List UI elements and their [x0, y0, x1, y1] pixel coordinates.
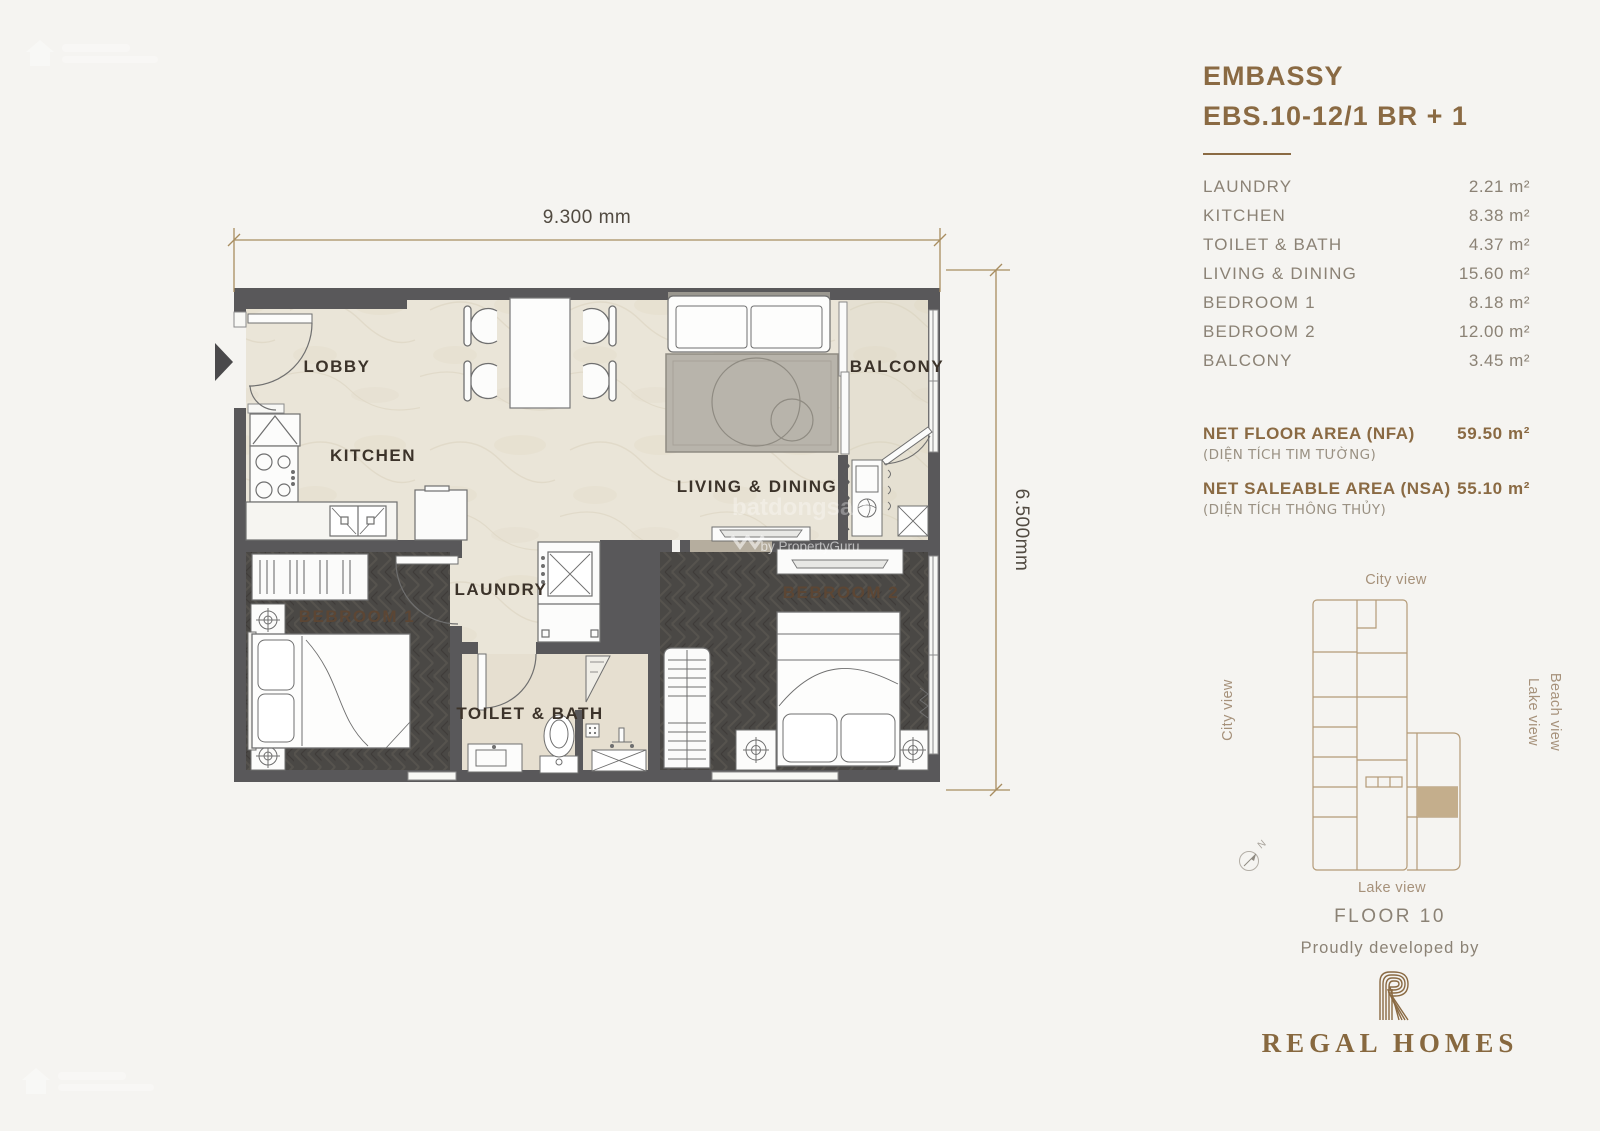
- keyplan-label-right-inner: Lake view: [1525, 678, 1541, 746]
- room-schedule-row: LAUNDRY 2.21 m²: [1203, 172, 1530, 201]
- label-balcony: BALCONY: [850, 357, 945, 376]
- label-toilet: TOILET & BATH: [456, 704, 603, 723]
- room-area: 4.37 m²: [1469, 235, 1530, 255]
- nsa-value: 55.10 m²: [1457, 479, 1530, 499]
- room-schedule-row: BEDROOM 2 12.00 m²: [1203, 317, 1530, 346]
- label-bedroom1: BEBROOM 1: [299, 607, 415, 626]
- dimension-top-label: 9.300 mm: [543, 207, 631, 228]
- compass-icon: [1240, 852, 1259, 871]
- watermark-byline: by PropertyGuru: [760, 539, 859, 554]
- developer-logo-wrap: [1180, 966, 1600, 1027]
- label-bedroom2: BEBROOM 2: [783, 583, 899, 602]
- nsa-sublabel: (DIỆN TÍCH THÔNG THỦY): [1203, 502, 1530, 518]
- floor-number: FLOOR 10: [1180, 906, 1600, 928]
- compass-north-label: N: [1256, 838, 1269, 851]
- developer-logo-icon: [1366, 966, 1414, 1022]
- nfa-value: 59.50 m²: [1457, 424, 1530, 444]
- room-schedule-row: TOILET & BATH 4.37 m²: [1203, 230, 1530, 259]
- unit-title: EMBASSY EBS.10-12/1 BR + 1: [1203, 56, 1563, 136]
- floorplan-drawing: LOBBY KITCHEN LIVING & DINING BALCONY LA…: [0, 0, 1160, 1131]
- room-area: 8.38 m²: [1469, 206, 1530, 226]
- room-name: TOILET & BATH: [1203, 235, 1342, 255]
- room-schedule-row: KITCHEN 8.38 m²: [1203, 201, 1530, 230]
- label-laundry: LAUNDRY: [455, 580, 548, 599]
- room-area: 15.60 m²: [1459, 264, 1530, 284]
- room-area: 3.45 m²: [1469, 351, 1530, 371]
- nfa-sublabel: (DIỆN TÍCH TIM TƯỜNG): [1203, 447, 1530, 463]
- keyplan-label-top: City view: [1365, 572, 1427, 588]
- room-schedule-row: BALCONY 3.45 m²: [1203, 346, 1530, 375]
- room-area: 2.21 m²: [1469, 177, 1530, 197]
- keyplan-label-bottom: Lake view: [1358, 880, 1426, 896]
- keyplan-label-right-outer: Beach view: [1547, 673, 1563, 751]
- balcony-sliding-door: [839, 302, 849, 454]
- developer-name: REGAL HOMES: [1180, 1028, 1600, 1059]
- nfa-block: NET FLOOR AREA (NFA) 59.50 m² (DIỆN TÍCH…: [1203, 424, 1530, 463]
- corner-watermark-bottom-icon: [18, 1060, 168, 1100]
- watermark-brand: batdongsan: [732, 494, 868, 521]
- keyplan-labels: City view City view Lake view Beach view…: [1220, 572, 1563, 896]
- room-name: KITCHEN: [1203, 206, 1286, 226]
- label-lobby: LOBBY: [304, 357, 371, 376]
- project-name: EMBASSY: [1203, 56, 1563, 96]
- unit-code: EBS.10-12/1 BR + 1: [1203, 96, 1563, 136]
- room-name: LIVING & DINING: [1203, 264, 1357, 284]
- room-name: BALCONY: [1203, 351, 1293, 371]
- label-kitchen: KITCHEN: [330, 446, 416, 465]
- room-schedule-row: LIVING & DINING 15.60 m²: [1203, 259, 1530, 288]
- room-schedule-row: BEDROOM 1 8.18 m²: [1203, 288, 1530, 317]
- nsa-label: NET SALEABLE AREA (NSA): [1203, 479, 1451, 499]
- dimension-right-label: 6.500mm: [1011, 489, 1032, 572]
- room-name: LAUNDRY: [1203, 177, 1292, 197]
- room-name: BEDROOM 1: [1203, 293, 1316, 313]
- room-schedule: LAUNDRY 2.21 m² KITCHEN 8.38 m² TOILET &…: [1203, 172, 1530, 375]
- room-area: 8.18 m²: [1469, 293, 1530, 313]
- room-area: 12.00 m²: [1459, 322, 1530, 342]
- wall-jamb: [672, 540, 680, 552]
- keyplan-label-left: City view: [1220, 679, 1236, 741]
- developer-tagline: Proudly developed by: [1180, 939, 1600, 958]
- entrance-arrow-icon: [215, 343, 233, 381]
- floorplan-page: LOBBY KITCHEN LIVING & DINING BALCONY LA…: [0, 0, 1600, 1131]
- nsa-block: NET SALEABLE AREA (NSA) 55.10 m² (DIỆN T…: [1203, 479, 1530, 518]
- keyplan-diagram: N City view City view Lake view Beach vi…: [1180, 540, 1600, 905]
- room-name: BEDROOM 2: [1203, 322, 1316, 342]
- corner-watermark-top-icon: [22, 32, 172, 72]
- keyplan-unit-highlight: [1417, 787, 1458, 817]
- keyplan-building: [1313, 600, 1460, 870]
- nfa-label: NET FLOOR AREA (NFA): [1203, 424, 1415, 444]
- title-divider: [1203, 153, 1291, 155]
